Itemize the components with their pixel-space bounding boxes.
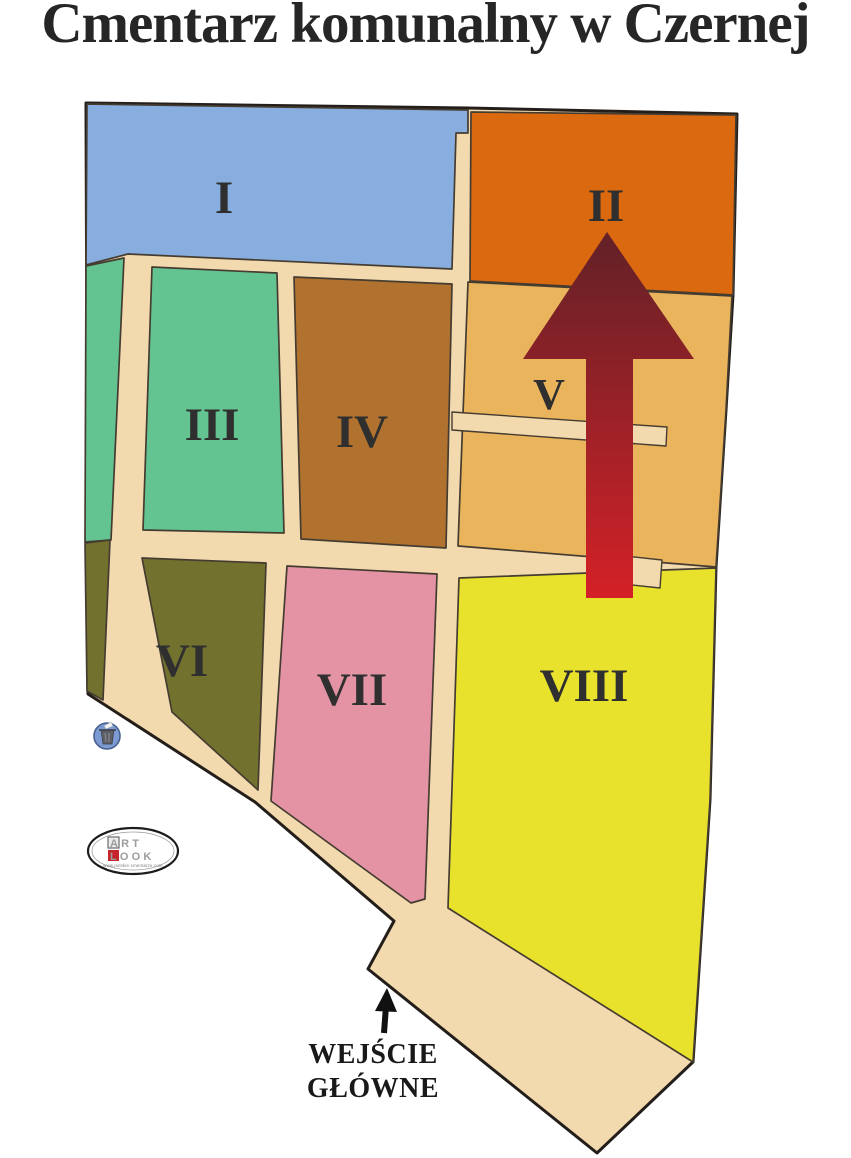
logo-url: www.polskie-cmentarze.com [103, 863, 163, 868]
cemetery-map-page: Cmentarz komunalny w Czernej I II III [0, 0, 851, 1158]
artlook-logo: ART LOOK www.polskie-cmentarze.com [88, 828, 178, 874]
section-i [86, 104, 468, 269]
entrance-arrow-icon [375, 988, 397, 1033]
cemetery-map: I II III IV V VI VII VIII ART LOOK www.p… [0, 0, 851, 1158]
entrance-label-line1: WEJŚCIE [308, 1039, 438, 1070]
section-i-label: I [215, 172, 233, 224]
section-iv-label: IV [336, 406, 388, 458]
entrance-label-line2: GŁÓWNE [307, 1073, 439, 1104]
logo-line1: ART [110, 838, 142, 850]
section-ii-label: II [588, 180, 625, 232]
section-vii [271, 566, 437, 903]
trash-bin-icon [94, 722, 120, 749]
section-vii-label: VII [317, 664, 388, 716]
section-v-label: V [533, 370, 565, 419]
section-iii-label: III [185, 399, 240, 451]
section-viii-label: VIII [540, 660, 629, 712]
logo-line2: LOOK [110, 851, 155, 863]
section-vi-label: VI [156, 635, 208, 687]
